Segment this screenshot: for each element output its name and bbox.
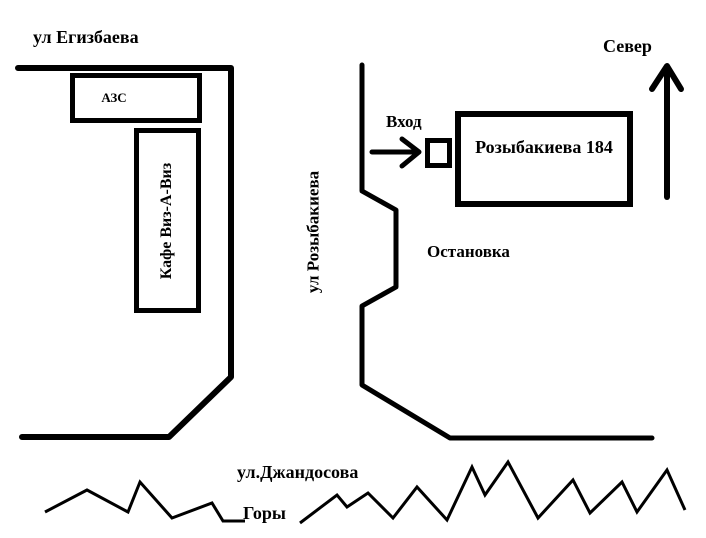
bus-stop-label: Остановка: [427, 243, 510, 260]
direction-map: АЗС Кафе Виз-А-Виз Розыбакиева 184 ул Ег…: [0, 0, 706, 538]
north-label: Север: [603, 37, 652, 55]
rozybakieva-street-label: ул Розыбакиева: [305, 171, 322, 293]
north-arrow-icon: [652, 66, 681, 197]
entrance-square: [425, 138, 452, 168]
entrance-arrow-icon: [372, 139, 419, 166]
egizbaeva-street-label: ул Егизбаева: [33, 28, 139, 46]
building-label: Розыбакиева 184: [475, 137, 613, 158]
mountains-line-left: [45, 482, 245, 521]
gas-station-box: АЗС: [70, 73, 202, 123]
building-box: Розыбакиева 184: [455, 111, 633, 207]
mountains-label: Горы: [243, 504, 286, 522]
gas-station-label: АЗС: [101, 90, 126, 106]
cafe-label: Кафе Виз-А-Виз: [159, 162, 177, 278]
entrance-label: Вход: [386, 113, 422, 130]
cafe-box: Кафе Виз-А-Виз: [134, 128, 201, 313]
dzhandosova-street-label: ул.Джандосова: [237, 463, 358, 481]
